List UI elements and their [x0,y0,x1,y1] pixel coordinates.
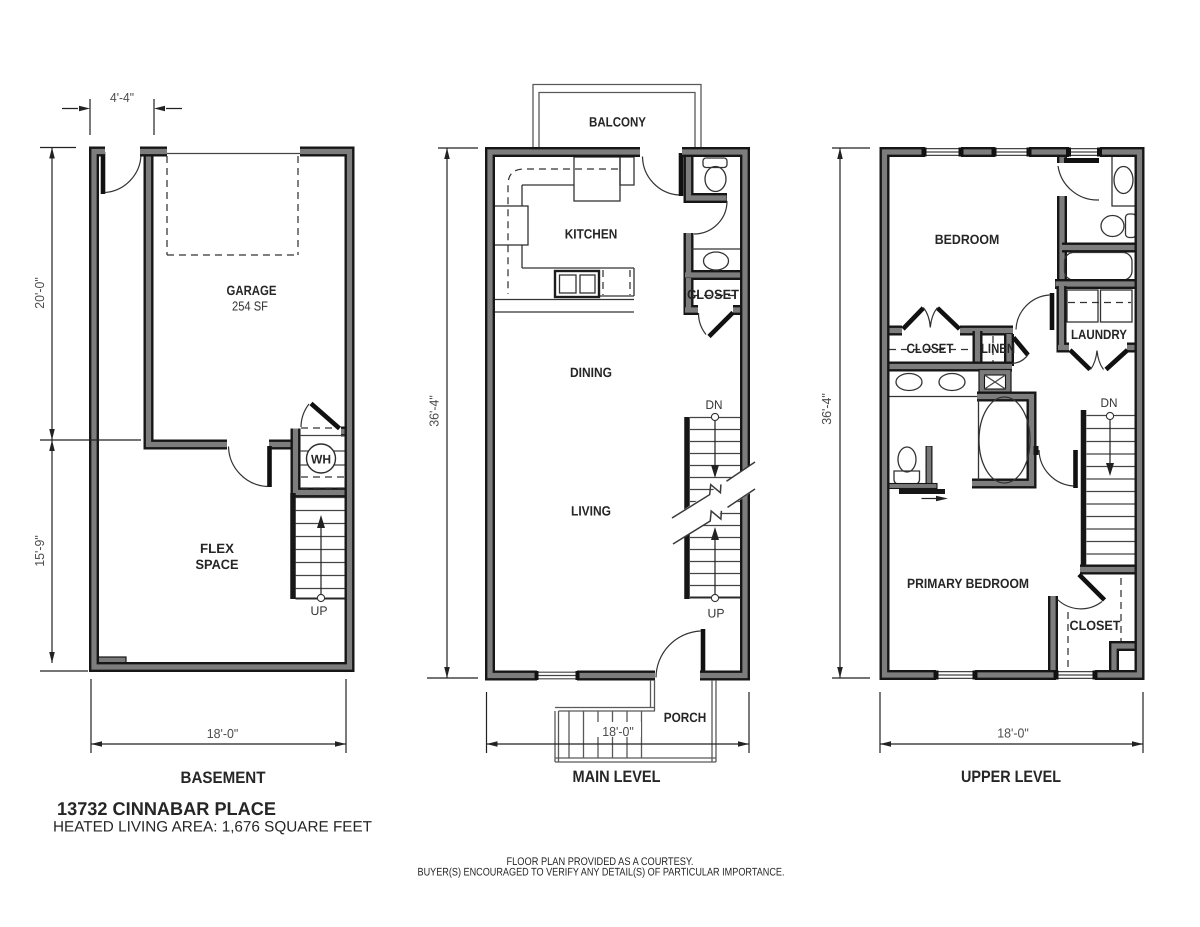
svg-text:20'-0": 20'-0" [32,277,47,309]
svg-text:BALCONY: BALCONY [589,115,646,130]
svg-text:18'-0": 18'-0" [997,726,1029,741]
svg-text:13732 CINNABAR PLACE: 13732 CINNABAR PLACE [57,798,276,819]
svg-text:BASEMENT: BASEMENT [181,769,266,787]
svg-text:DN: DN [1101,396,1118,410]
svg-text:DN: DN [706,398,723,412]
svg-text:LIVING: LIVING [571,504,611,519]
svg-text:BEDROOM: BEDROOM [935,232,1000,247]
svg-text:PRIMARY BEDROOM: PRIMARY BEDROOM [907,576,1029,591]
svg-text:254 SF: 254 SF [232,299,268,314]
svg-text:CLOSET: CLOSET [907,341,955,356]
svg-text:MAIN LEVEL: MAIN LEVEL [573,768,661,786]
svg-text:4'-4": 4'-4" [110,90,134,105]
svg-text:15'-9": 15'-9" [32,535,47,567]
svg-text:CLOSET: CLOSET [687,287,740,302]
svg-text:LAUNDRY: LAUNDRY [1071,327,1127,342]
svg-text:UP: UP [311,604,328,618]
svg-text:BUYER(S) ENCOURAGED TO VERIFY: BUYER(S) ENCOURAGED TO VERIFY ANY DETAIL… [418,867,785,879]
svg-text:WH: WH [311,453,331,467]
svg-text:GARAGE: GARAGE [227,283,277,298]
svg-text:PORCH: PORCH [664,710,707,725]
svg-text:FLEX: FLEX [200,541,234,556]
svg-text:LINEN: LINEN [981,341,1015,356]
svg-text:36'-4": 36'-4" [427,395,442,427]
svg-text:36'-4": 36'-4" [819,393,834,425]
svg-text:18'-0": 18'-0" [602,724,634,739]
svg-text:HEATED LIVING AREA: 1,676 SQUA: HEATED LIVING AREA: 1,676 SQUARE FEET [53,819,372,836]
svg-text:SPACE: SPACE [196,557,239,572]
svg-text:18'-0": 18'-0" [207,726,239,741]
svg-text:UP: UP [708,607,725,621]
svg-text:DINING: DINING [570,365,612,380]
svg-text:CLOSET: CLOSET [1070,618,1122,633]
svg-text:KITCHEN: KITCHEN [565,227,618,242]
svg-text:UPPER LEVEL: UPPER LEVEL [961,768,1061,786]
